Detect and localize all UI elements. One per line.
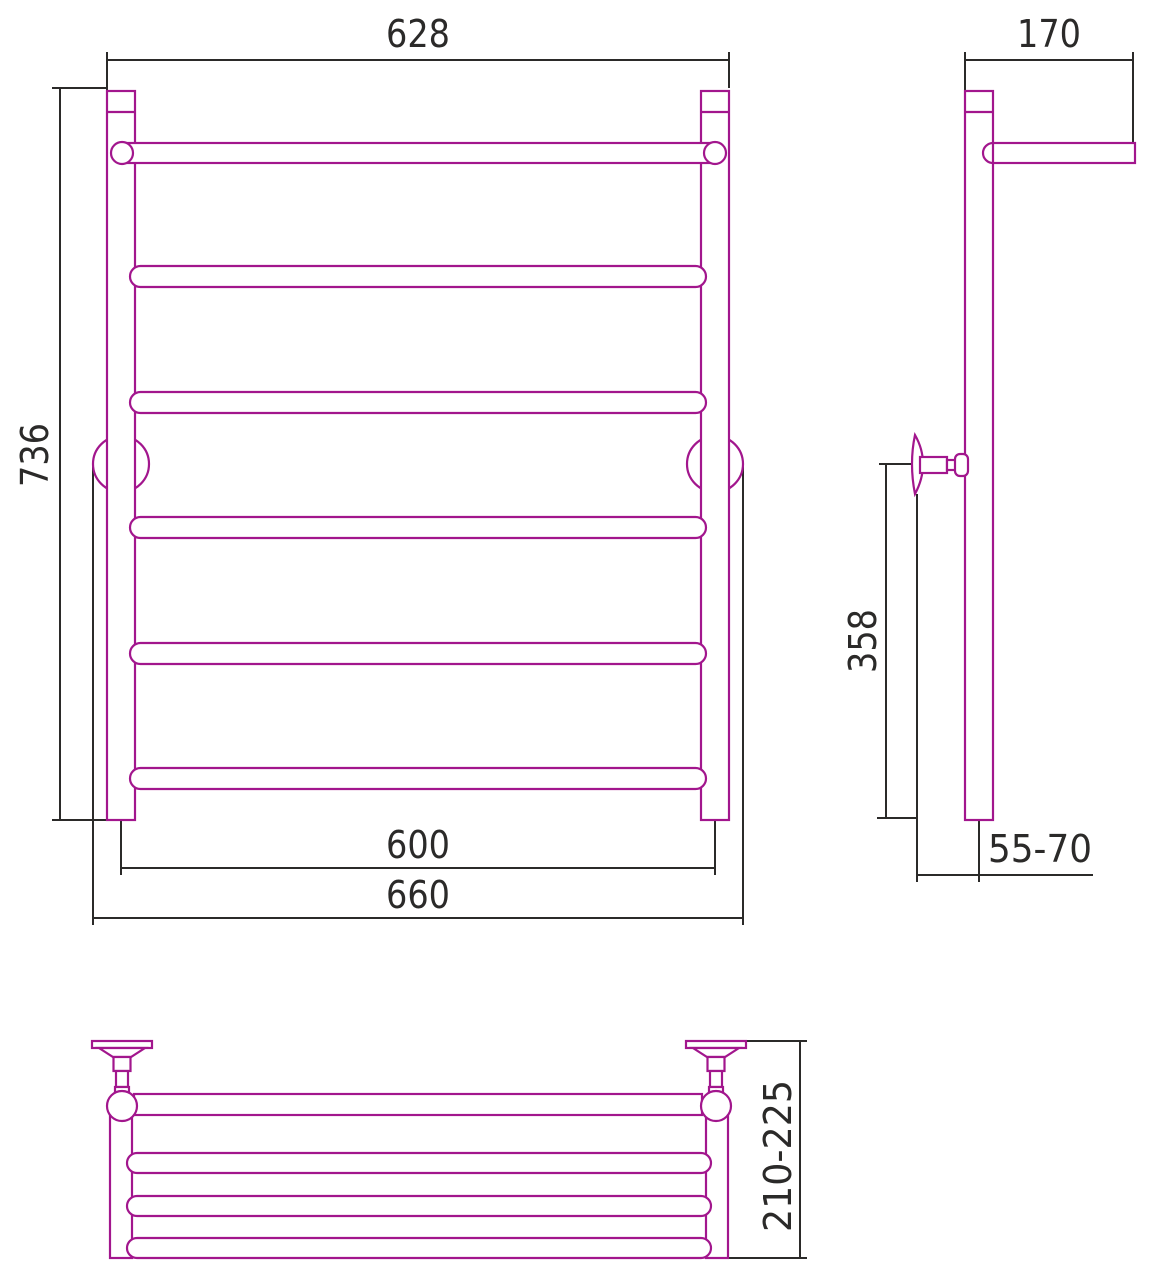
front-top-rail-right-ball <box>704 142 726 164</box>
top-right-neck <box>710 1071 722 1087</box>
top-right-flange-cone <box>693 1048 739 1057</box>
top-left-neck <box>116 1071 128 1087</box>
side-bracket-stem <box>920 457 947 473</box>
top-view-product <box>92 1041 746 1258</box>
side-top-rail <box>993 143 1135 163</box>
dimension-texts: 628 736 600 660 170 358 55-70 210-225 <box>13 12 1092 1232</box>
front-right-post <box>701 91 729 820</box>
technical-drawing-canvas: 628 736 600 660 170 358 55-70 210-225 <box>0 0 1154 1280</box>
top-left-ball-joint <box>107 1091 137 1121</box>
dim-text-front-overall-width: 660 <box>386 873 450 917</box>
dim-line-side-wall-offset <box>917 494 1093 882</box>
dim-text-side-lower-height: 358 <box>841 609 885 673</box>
dim-text-side-wall-offset: 55-70 <box>988 827 1092 871</box>
front-rung-6 <box>130 768 706 789</box>
top-right-stem <box>708 1057 725 1071</box>
dim-text-front-post-spacing: 600 <box>386 823 450 867</box>
dimension-lines-front-view <box>52 52 743 925</box>
dim-text-side-top-depth: 170 <box>1017 12 1081 56</box>
front-top-rail <box>122 143 715 163</box>
top-left-stem <box>114 1057 131 1071</box>
dim-text-front-overall-height: 736 <box>13 423 57 487</box>
side-post <box>965 91 993 820</box>
top-left-rail <box>110 1112 132 1258</box>
side-bracket-collar <box>955 454 968 476</box>
front-top-rail-left-ball <box>111 142 133 164</box>
top-front-bar <box>134 1094 702 1115</box>
dim-text-top-depth: 210-225 <box>756 1080 800 1232</box>
top-shelf-rung-2 <box>127 1196 711 1216</box>
drawing-page: 628 736 600 660 170 358 55-70 210-225 <box>0 0 1154 1280</box>
front-left-post <box>107 91 135 820</box>
dim-text-front-top-width: 628 <box>386 12 450 56</box>
top-shelf-rung-1 <box>127 1153 711 1173</box>
top-left-flange-cone <box>99 1048 145 1057</box>
side-view-product <box>912 91 1135 820</box>
dim-line-front-top-width <box>107 52 729 91</box>
top-right-ball-joint <box>701 1091 731 1121</box>
front-rung-4 <box>130 517 706 538</box>
top-right-rail <box>706 1112 728 1258</box>
front-rung-2 <box>130 266 706 287</box>
front-rung-5 <box>130 643 706 664</box>
front-view-product <box>93 91 743 820</box>
front-rung-3 <box>130 392 706 413</box>
top-shelf-rung-3 <box>127 1238 711 1258</box>
